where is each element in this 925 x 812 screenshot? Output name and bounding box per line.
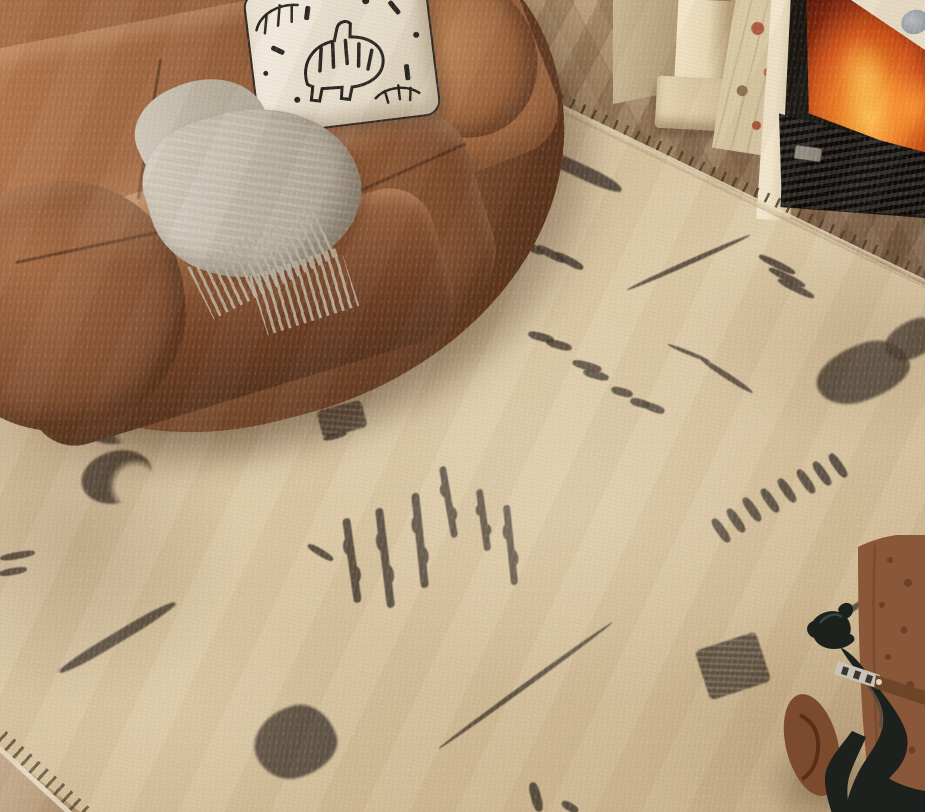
living-room-photo: [0, 0, 925, 812]
collar-buckle: [876, 679, 882, 685]
dog-sculpture-chair: [780, 535, 925, 812]
